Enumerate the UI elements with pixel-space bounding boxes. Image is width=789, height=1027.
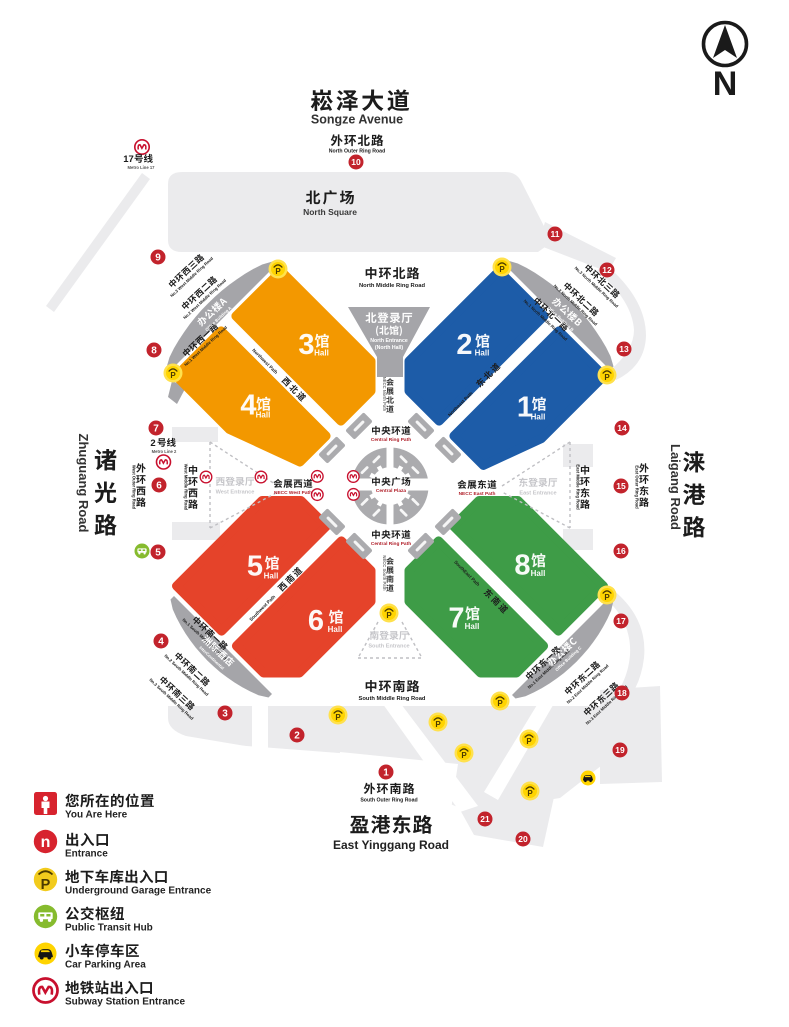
svg-text:Hall: Hall bbox=[531, 413, 546, 422]
svg-text:NECC East Path: NECC East Path bbox=[459, 491, 496, 497]
svg-text:4: 4 bbox=[240, 390, 256, 422]
svg-text:n: n bbox=[41, 834, 51, 851]
svg-text:20: 20 bbox=[518, 834, 528, 844]
svg-text:12: 12 bbox=[602, 265, 612, 275]
svg-text:P: P bbox=[435, 720, 441, 729]
svg-text:East Entrance: East Entrance bbox=[519, 491, 556, 497]
svg-text:West Entrance: West Entrance bbox=[216, 490, 255, 496]
svg-text:Laigang Road: Laigang Road bbox=[668, 444, 683, 530]
svg-text:9: 9 bbox=[155, 253, 161, 264]
svg-text:P: P bbox=[461, 751, 467, 760]
svg-text:2: 2 bbox=[150, 438, 155, 449]
svg-text:You Are Here: You Are Here bbox=[65, 810, 128, 821]
svg-text:Car Parking Area: Car Parking Area bbox=[65, 960, 146, 971]
svg-text:5: 5 bbox=[247, 551, 263, 583]
svg-text:East Middle Ring Road: East Middle Ring Road bbox=[576, 464, 581, 510]
svg-text:South Entrance: South Entrance bbox=[368, 644, 409, 650]
svg-text:Public Transit Hub: Public Transit Hub bbox=[65, 923, 153, 934]
svg-text:NECC South Path: NECC South Path bbox=[382, 555, 387, 591]
svg-text:P: P bbox=[170, 371, 176, 380]
svg-text:Hall: Hall bbox=[314, 349, 329, 358]
svg-text:6: 6 bbox=[308, 605, 324, 637]
svg-text:P: P bbox=[275, 267, 281, 276]
svg-text:14: 14 bbox=[617, 423, 627, 433]
svg-text:P: P bbox=[604, 593, 610, 602]
svg-text:P: P bbox=[499, 265, 505, 274]
svg-text:North Square: North Square bbox=[303, 207, 357, 217]
svg-text:N: N bbox=[713, 65, 738, 103]
svg-text:17: 17 bbox=[616, 616, 626, 626]
svg-text:11: 11 bbox=[551, 229, 560, 239]
svg-text:Metro Line 17: Metro Line 17 bbox=[128, 165, 156, 170]
svg-text:Metro Line 2: Metro Line 2 bbox=[152, 449, 177, 454]
svg-text:Songze Avenue: Songze Avenue bbox=[311, 113, 403, 127]
svg-text:North Outer Ring Road: North Outer Ring Road bbox=[329, 149, 385, 155]
svg-text:Hall: Hall bbox=[465, 622, 480, 631]
svg-text:Central Plaza: Central Plaza bbox=[376, 488, 406, 494]
svg-text:18: 18 bbox=[617, 688, 627, 698]
svg-text:Central Ring Path: Central Ring Path bbox=[371, 437, 411, 443]
svg-text:NECC North Path: NECC North Path bbox=[382, 377, 387, 412]
svg-text:21: 21 bbox=[480, 814, 490, 824]
svg-text:Hall: Hall bbox=[264, 572, 279, 581]
svg-text:8: 8 bbox=[514, 550, 530, 582]
svg-text:P: P bbox=[527, 789, 533, 798]
svg-text:East Outer Ring Road: East Outer Ring Road bbox=[635, 465, 640, 509]
svg-text:West Outer Ring Road: West Outer Ring Road bbox=[132, 465, 137, 510]
svg-text:Zhuguang Road: Zhuguang Road bbox=[76, 434, 91, 533]
svg-text:(North Hall): (North Hall) bbox=[375, 345, 404, 351]
svg-text:P: P bbox=[604, 373, 610, 382]
svg-text:4: 4 bbox=[158, 637, 164, 648]
svg-text:South Outer Ring Road: South Outer Ring Road bbox=[360, 798, 417, 804]
svg-text:Hall: Hall bbox=[256, 411, 271, 420]
svg-text:P: P bbox=[526, 737, 532, 746]
svg-text:Hall: Hall bbox=[531, 569, 546, 578]
svg-text:10: 10 bbox=[351, 157, 361, 167]
svg-text:South Middle Ring Road: South Middle Ring Road bbox=[359, 696, 426, 702]
svg-text:West Middle Ring Road: West Middle Ring Road bbox=[184, 464, 189, 511]
svg-text:7: 7 bbox=[448, 603, 464, 635]
svg-text:13: 13 bbox=[619, 344, 629, 354]
svg-text:East Yinggang Road: East Yinggang Road bbox=[333, 838, 449, 852]
svg-text:Entrance: Entrance bbox=[65, 849, 108, 860]
svg-text:7: 7 bbox=[153, 424, 159, 435]
svg-text:North Entrance: North Entrance bbox=[370, 338, 408, 344]
svg-text:5: 5 bbox=[155, 548, 161, 559]
svg-text:Underground Garage Entrance: Underground Garage Entrance bbox=[65, 886, 212, 897]
svg-text:P: P bbox=[386, 611, 392, 620]
svg-text:3: 3 bbox=[222, 709, 228, 720]
svg-text:16: 16 bbox=[616, 546, 626, 556]
svg-text:North Middle Ring Road: North Middle Ring Road bbox=[359, 283, 425, 289]
svg-text:2: 2 bbox=[294, 731, 300, 742]
svg-text:P: P bbox=[335, 713, 341, 722]
svg-text:3: 3 bbox=[298, 329, 314, 361]
svg-text:Hall: Hall bbox=[328, 625, 343, 634]
svg-text:17: 17 bbox=[123, 154, 134, 165]
svg-text:15: 15 bbox=[616, 481, 626, 491]
svg-text:Central Ring Path: Central Ring Path bbox=[371, 541, 411, 547]
svg-text:2: 2 bbox=[456, 329, 472, 361]
svg-text:8: 8 bbox=[151, 346, 157, 357]
svg-text:P: P bbox=[41, 877, 51, 893]
svg-text:NECC West Path: NECC West Path bbox=[274, 490, 312, 496]
svg-text:1: 1 bbox=[383, 768, 389, 779]
svg-text:19: 19 bbox=[615, 745, 625, 755]
svg-text:Hall: Hall bbox=[475, 349, 490, 358]
svg-text:Subway Station Entrance: Subway Station Entrance bbox=[65, 997, 185, 1008]
svg-text:P: P bbox=[497, 699, 503, 708]
svg-text:6: 6 bbox=[156, 481, 162, 492]
